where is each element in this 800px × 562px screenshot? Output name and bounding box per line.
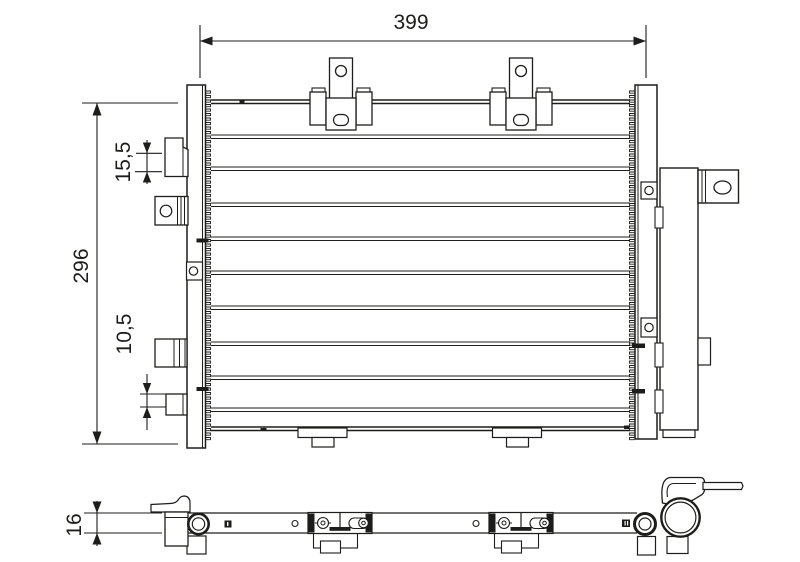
dimension-10-5: 10,5 <box>113 314 166 430</box>
technical-drawing-canvas: 399 296 15,5 10,5 16 <box>0 0 800 562</box>
top-bracket <box>310 58 372 130</box>
bolt <box>359 518 369 528</box>
bottom-view <box>151 478 743 556</box>
top-bracket <box>490 58 552 130</box>
oval-slot <box>514 115 529 126</box>
dim-label-width: 399 <box>393 11 428 34</box>
top-mounting-brackets <box>310 58 552 130</box>
right-side-bracket <box>698 170 739 203</box>
side-plate <box>655 168 711 438</box>
tank-hole-brackets <box>187 182 658 337</box>
oval-hole <box>714 181 731 194</box>
dimension-width-399: 399 <box>200 11 646 78</box>
left-hook-bracket <box>151 496 190 512</box>
upper-step-fitting <box>165 138 188 177</box>
right-header-tank <box>635 85 657 439</box>
bottom-bracket <box>298 428 347 447</box>
bolt <box>499 518 510 529</box>
condenser-technical-drawing: 399 296 15,5 10,5 16 <box>0 0 800 562</box>
lower-fitting <box>166 394 187 415</box>
dimension-15-5: 15,5 <box>112 140 162 184</box>
hook-arm <box>703 483 743 490</box>
left-fittings <box>155 138 188 415</box>
fin-serration-strips <box>206 91 635 440</box>
dim-label-upper-offset: 15,5 <box>112 142 135 183</box>
dim-label-height: 296 <box>70 248 93 283</box>
dimension-depth-16: 16 <box>63 501 162 546</box>
bottom-view-left-end <box>151 496 232 554</box>
front-view <box>155 58 739 448</box>
dim-label-lower-offset: 10,5 <box>113 314 136 355</box>
pipe-fitting <box>155 339 187 367</box>
bottom-bracket <box>493 428 542 447</box>
bracket-hole <box>516 66 527 77</box>
baffle-marks <box>197 100 646 431</box>
dim-label-depth: 16 <box>63 513 86 536</box>
core-tubes <box>211 100 630 431</box>
bracket-hole <box>336 66 347 77</box>
bottom-view-right-end <box>622 478 743 556</box>
bolt <box>540 518 550 528</box>
oval-slot <box>334 115 349 126</box>
bolt <box>318 518 329 529</box>
